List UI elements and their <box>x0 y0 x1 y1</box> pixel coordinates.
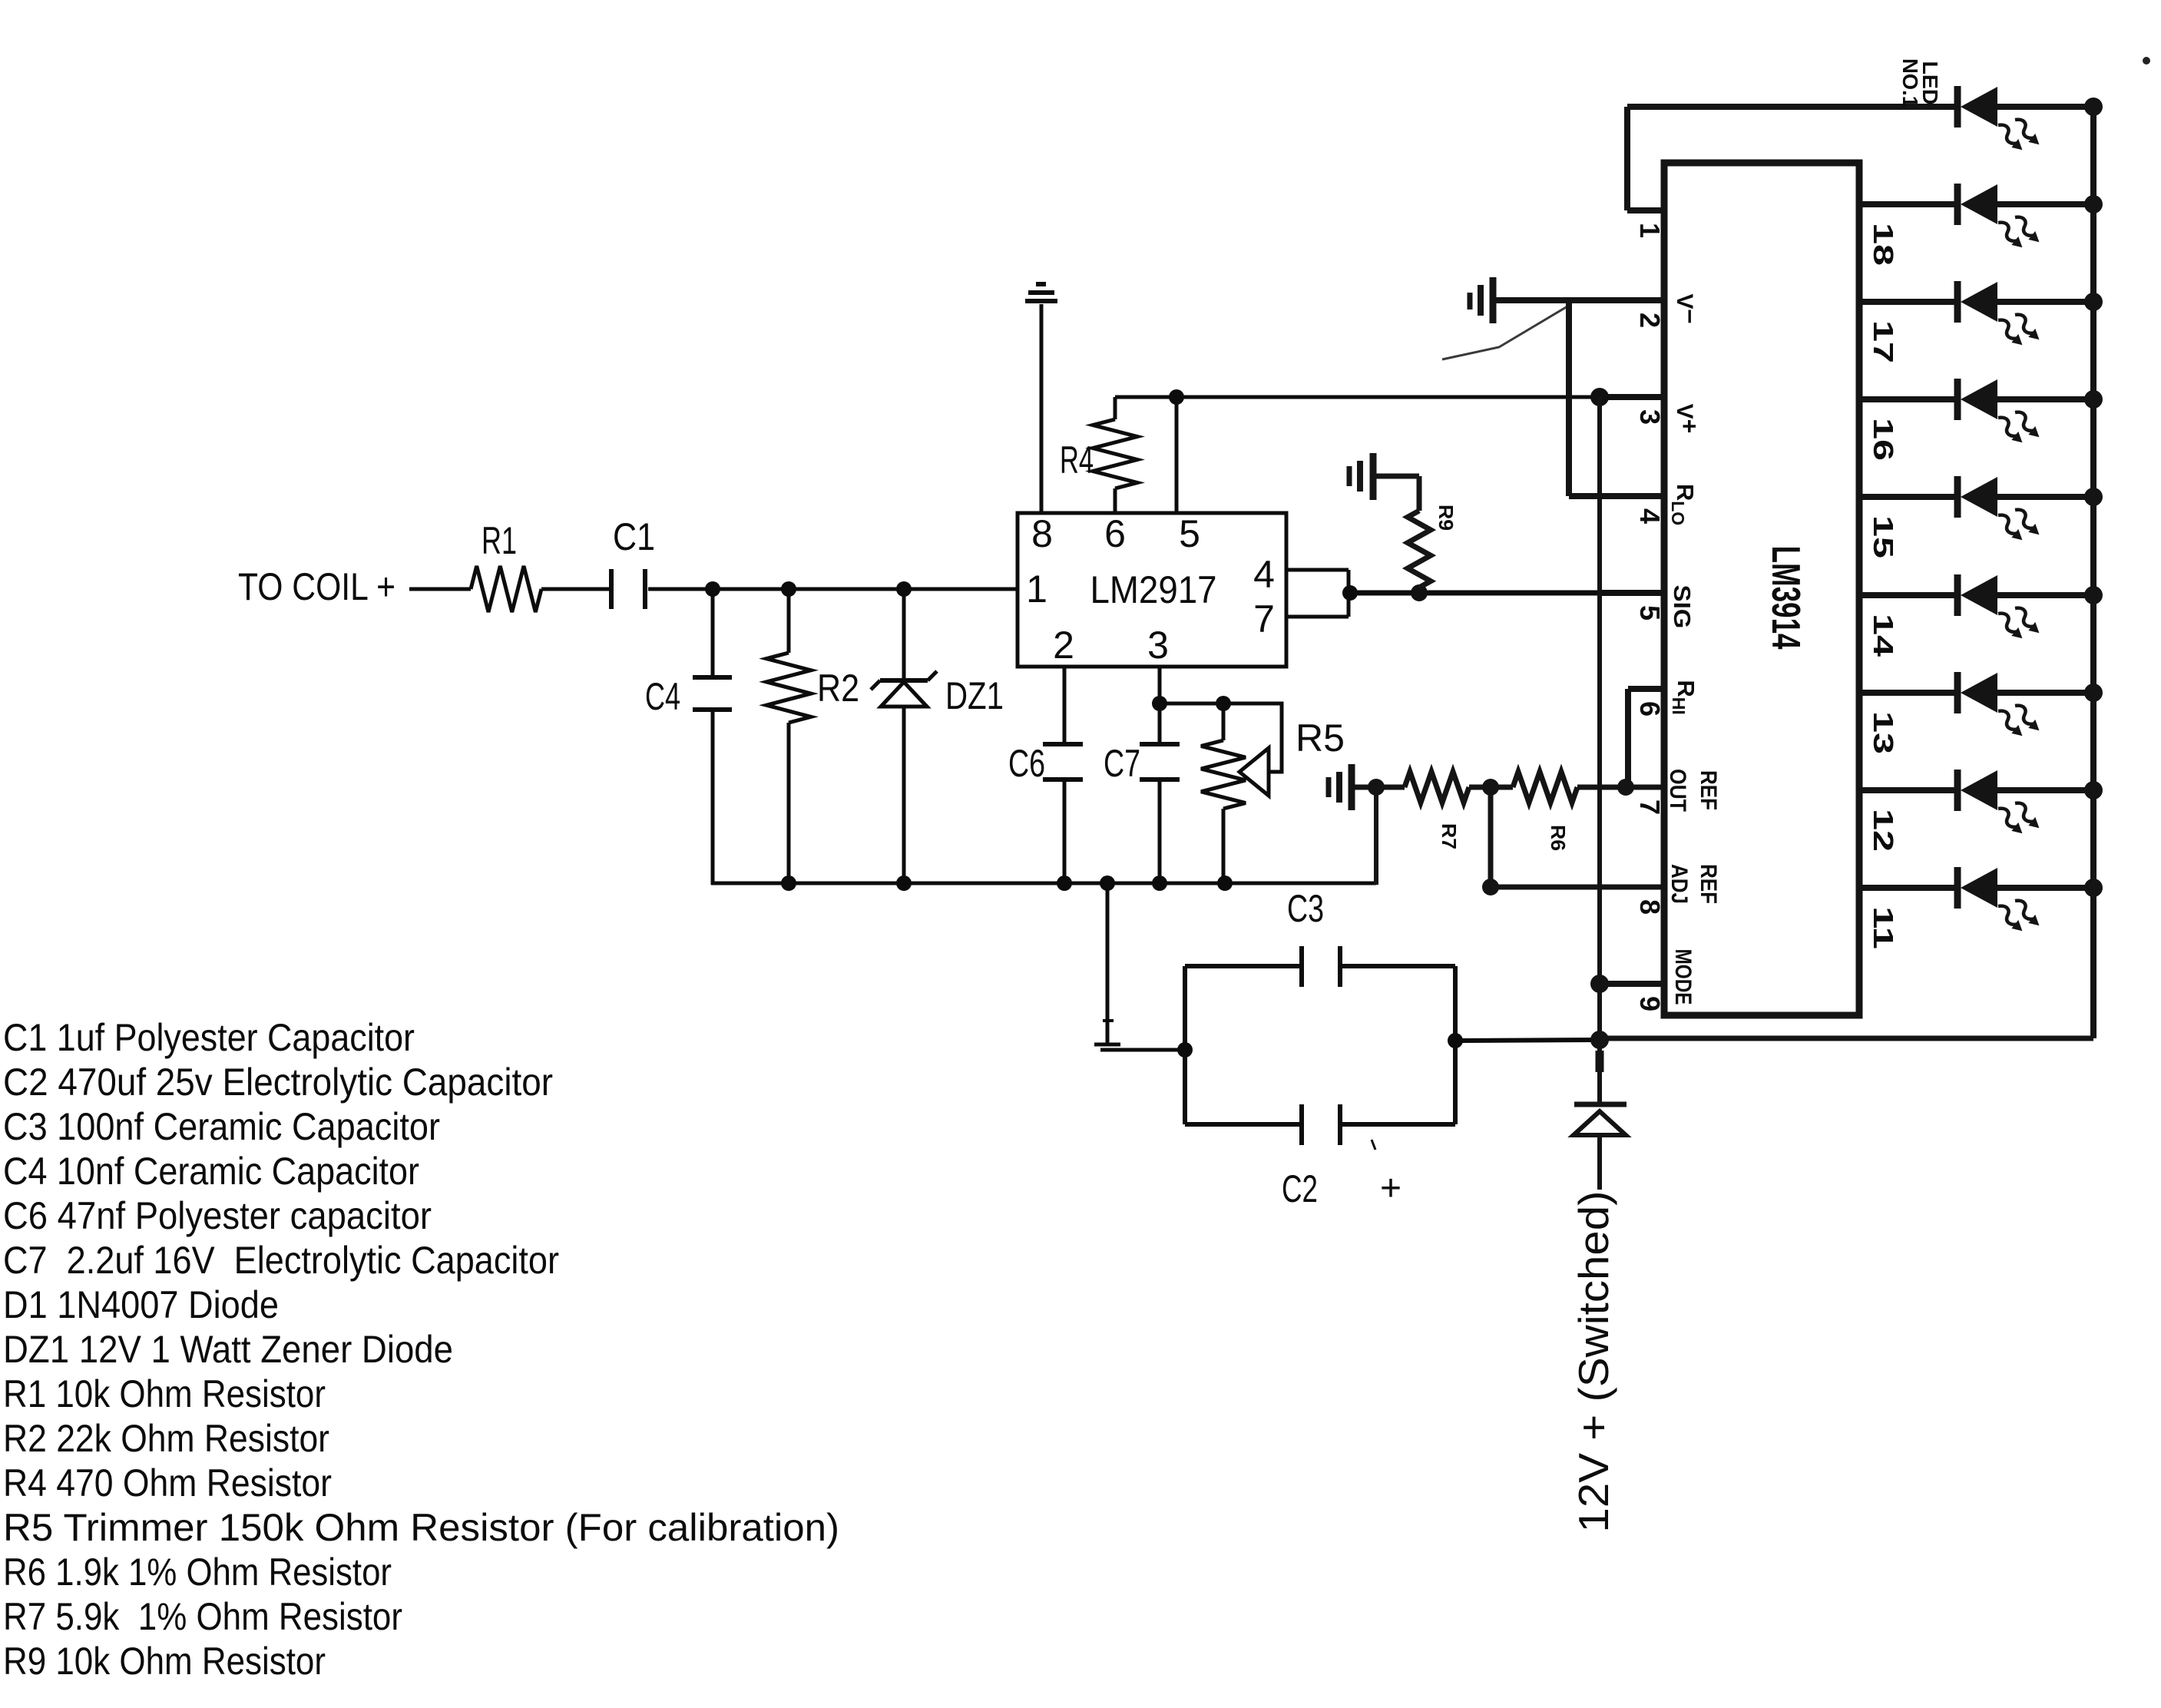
svg-text:R4: R4 <box>1060 439 1094 482</box>
svg-text:LM3914: LM3914 <box>1763 546 1808 650</box>
svg-text:R5 Trimmer 150k Ohm Resistor (: R5 Trimmer 150k Ohm Resistor (For calibr… <box>3 1506 839 1549</box>
svg-text:2: 2 <box>1634 313 1666 328</box>
svg-text:12: 12 <box>1868 809 1899 852</box>
svg-text:C7 2.2uf 16V Electrolytic Ca: C7 2.2uf 16V Electrolytic Capacitor <box>3 1239 559 1282</box>
svg-text:C6: C6 <box>1008 742 1045 785</box>
svg-text:C1 1uf Polyester Capacitor: C1 1uf Polyester Capacitor <box>3 1016 415 1059</box>
svg-text:R7: R7 <box>1438 823 1461 849</box>
svg-text:18: 18 <box>1868 223 1899 266</box>
svg-text:2: 2 <box>1053 624 1074 667</box>
svg-text:15: 15 <box>1868 515 1899 558</box>
svg-text:LM2917: LM2917 <box>1090 568 1217 611</box>
svg-text:3: 3 <box>1634 409 1666 425</box>
svg-text:C4 10nf Ceramic Capacitor: C4 10nf Ceramic Capacitor <box>3 1150 419 1193</box>
svg-text:4: 4 <box>1253 553 1275 596</box>
svg-text:8: 8 <box>1634 899 1666 915</box>
svg-text:D1 1N4007 Diode: D1 1N4007 Diode <box>3 1283 279 1326</box>
svg-text:R7 5.9k 1% Ohm Resistor: R7 5.9k 1% Ohm Resistor <box>3 1595 402 1638</box>
svg-text:C3: C3 <box>1287 887 1324 930</box>
svg-text:MODE: MODE <box>1670 949 1696 1005</box>
svg-text:+: + <box>1380 1168 1402 1209</box>
svg-text:R2: R2 <box>817 667 859 710</box>
svg-text:R9: R9 <box>1435 505 1458 531</box>
svg-text:TO COIL +: TO COIL + <box>238 565 395 608</box>
svg-text:R1: R1 <box>482 519 517 562</box>
svg-text:C1: C1 <box>613 515 655 558</box>
svg-text:R1 10k Ohm Resistor: R1 10k Ohm Resistor <box>3 1372 326 1415</box>
svg-text:V–: V– <box>1672 294 1706 324</box>
svg-text:REF: REF <box>1696 770 1721 810</box>
svg-text:8: 8 <box>1031 512 1053 555</box>
svg-text:RHI: RHI <box>1669 680 1699 714</box>
svg-text:DZ1 12V 1 Watt Zener Diode: DZ1 12V 1 Watt Zener Diode <box>3 1328 453 1371</box>
svg-text:DZ1: DZ1 <box>945 674 1004 717</box>
svg-text:4: 4 <box>1634 508 1666 524</box>
svg-text:OUT: OUT <box>1665 769 1690 812</box>
svg-text:R2 22k Ohm Resistor: R2 22k Ohm Resistor <box>3 1417 329 1460</box>
svg-text:R4 470 Ohm Resistor: R4 470 Ohm Resistor <box>3 1461 332 1504</box>
svg-text:C2 470uf 25v Electrolytic Capa: C2 470uf 25v Electrolytic Capacitor <box>3 1061 553 1104</box>
svg-text:R6 1.9k 1% Ohm Resistor: R6 1.9k 1% Ohm Resistor <box>3 1551 392 1594</box>
svg-text:17: 17 <box>1868 320 1899 363</box>
svg-text:9: 9 <box>1634 996 1666 1011</box>
svg-text:REF: REF <box>1696 864 1721 904</box>
svg-text:C4: C4 <box>645 675 680 718</box>
svg-text:16: 16 <box>1868 418 1899 461</box>
svg-text:1: 1 <box>1634 223 1666 238</box>
svg-text:C6 47nf Polyester capacitor: C6 47nf Polyester capacitor <box>3 1194 432 1237</box>
svg-text:7: 7 <box>1253 597 1275 640</box>
svg-text:1: 1 <box>1026 568 1047 611</box>
svg-text:3: 3 <box>1147 624 1169 667</box>
svg-text:C2: C2 <box>1282 1167 1318 1210</box>
svg-text:R9 10k Ohm Resistor: R9 10k Ohm Resistor <box>3 1640 326 1683</box>
svg-text:C3 100nf Ceramic Capacitor: C3 100nf Ceramic Capacitor <box>3 1105 440 1148</box>
svg-text:5: 5 <box>1179 512 1200 555</box>
svg-text:R5: R5 <box>1296 717 1345 760</box>
svg-text:C7: C7 <box>1104 742 1140 785</box>
svg-text:14: 14 <box>1868 614 1899 657</box>
svg-text:6: 6 <box>1634 701 1666 717</box>
svg-text:13: 13 <box>1868 711 1899 754</box>
svg-text:7: 7 <box>1634 799 1666 815</box>
svg-text:R6: R6 <box>1547 825 1570 851</box>
svg-text:V+: V+ <box>1672 404 1703 434</box>
svg-text:ADJ: ADJ <box>1666 864 1692 904</box>
svg-text:11: 11 <box>1868 906 1899 949</box>
svg-text:6: 6 <box>1104 512 1126 555</box>
svg-text:NO.1: NO.1 <box>1898 58 1922 108</box>
svg-text:12V + (Switched): 12V + (Switched) <box>1570 1191 1617 1533</box>
svg-text:5: 5 <box>1634 605 1666 621</box>
svg-text:SIG: SIG <box>1669 585 1696 629</box>
svg-text:RLO: RLO <box>1668 484 1699 525</box>
